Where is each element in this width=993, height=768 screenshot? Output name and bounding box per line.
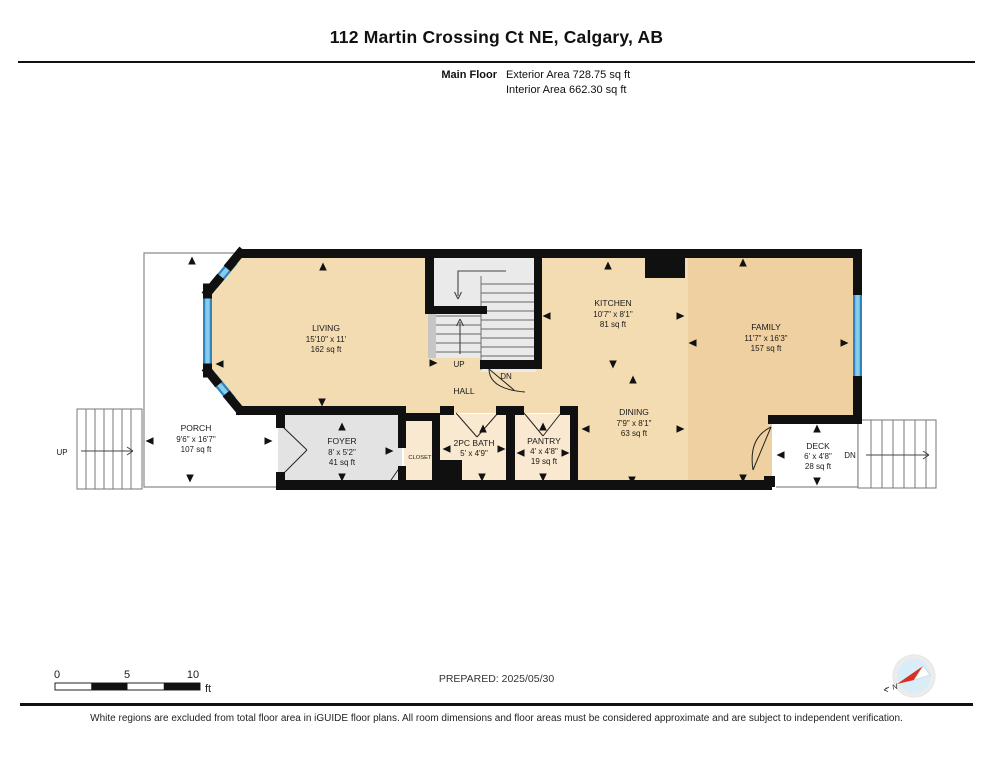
svg-text:162 sq ft: 162 sq ft <box>311 345 342 354</box>
svg-text:107 sq ft: 107 sq ft <box>181 445 212 454</box>
porch-stairs-up-label: UP <box>56 448 67 457</box>
prepared-date-label: PREPARED: 2025/05/30 <box>0 673 993 685</box>
closet-label: CLOSET <box>408 455 432 461</box>
svg-text:FOYER: FOYER <box>327 436 356 446</box>
stairs-up-label: UP <box>453 360 464 369</box>
disclaimer-text: White regions are excluded from total fl… <box>0 713 993 724</box>
porch-label: PORCH 9'6" x 16'7" 107 sq ft <box>176 423 216 454</box>
svg-text:10'7" x 8'1": 10'7" x 8'1" <box>593 310 633 319</box>
svg-text:157 sq ft: 157 sq ft <box>751 344 782 353</box>
svg-text:LIVING: LIVING <box>312 323 340 333</box>
svg-text:19 sq ft: 19 sq ft <box>531 457 558 466</box>
svg-text:11'7" x 16'3": 11'7" x 16'3" <box>744 334 787 343</box>
footer-divider <box>20 703 973 706</box>
svg-text:2PC BATH: 2PC BATH <box>454 438 495 448</box>
hall-label: HALL <box>453 386 475 396</box>
floor-plan-drawing: LIVING 15'10" x 11' 162 sq ft KITCHEN 10… <box>0 0 993 768</box>
family-floor-fill <box>688 254 858 484</box>
svg-text:6' x 4'8": 6' x 4'8" <box>804 452 832 461</box>
svg-text:FAMILY: FAMILY <box>751 322 781 332</box>
svg-text:81 sq ft: 81 sq ft <box>600 320 627 329</box>
svg-text:7'9" x 8'1": 7'9" x 8'1" <box>617 419 652 428</box>
pantry-label: PANTRY 4' x 4'8" 19 sq ft <box>527 436 561 466</box>
stairs-dn-label: DN <box>500 372 512 381</box>
svg-text:63 sq ft: 63 sq ft <box>621 429 648 438</box>
dining-label: DINING 7'9" x 8'1" 63 sq ft <box>617 407 652 438</box>
svg-text:DINING: DINING <box>619 407 649 417</box>
svg-text:PORCH: PORCH <box>181 423 212 433</box>
svg-text:DECK: DECK <box>806 441 830 451</box>
deck-label: DECK 6' x 4'8" 28 sq ft <box>804 441 832 471</box>
svg-text:4' x 4'8": 4' x 4'8" <box>530 447 558 456</box>
svg-text:15'10" x 11': 15'10" x 11' <box>306 335 347 344</box>
svg-text:41 sq ft: 41 sq ft <box>329 458 356 467</box>
svg-text:8' x 5'2": 8' x 5'2" <box>328 448 356 457</box>
foyer-label: FOYER 8' x 5'2" 41 sq ft <box>327 436 356 467</box>
porch-stairs-icon <box>77 409 142 489</box>
deck-stairs-icon <box>858 420 936 488</box>
svg-text:KITCHEN: KITCHEN <box>594 298 631 308</box>
closet-fill <box>404 420 434 484</box>
deck-stairs-dn-label: DN <box>844 451 856 460</box>
svg-text:9'6" x 16'7": 9'6" x 16'7" <box>176 435 216 444</box>
svg-text:PANTRY: PANTRY <box>527 436 561 446</box>
svg-text:28 sq ft: 28 sq ft <box>805 462 832 471</box>
floor-plan-page: 112 Martin Crossing Ct NE, Calgary, AB M… <box>0 0 993 768</box>
svg-text:5' x 4'9": 5' x 4'9" <box>460 449 488 458</box>
